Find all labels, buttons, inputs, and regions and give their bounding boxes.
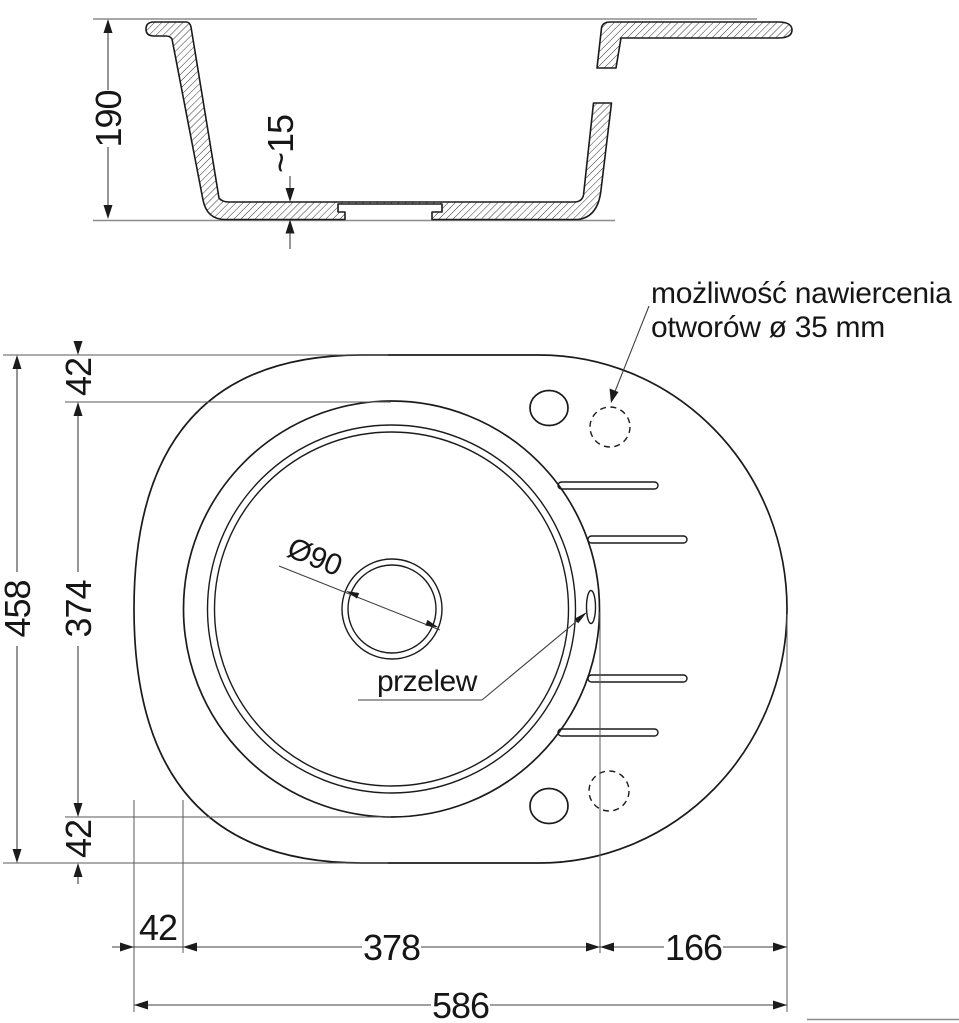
- dim-total-height-458: 458: [0, 355, 38, 863]
- dim-depth-190: 190: [88, 19, 129, 219]
- arrowhead: [773, 1001, 787, 1010]
- leader-line: [612, 306, 649, 399]
- arrowhead: [74, 803, 83, 817]
- arrowhead: [425, 620, 438, 628]
- drain-diameter-label: Ø90: [283, 532, 347, 583]
- arrowhead: [13, 849, 22, 863]
- drainer-groove-2: [588, 536, 687, 543]
- dim-label-bowl-height: 374: [58, 580, 99, 637]
- arrowhead: [74, 341, 83, 355]
- dim-line: [279, 566, 440, 630]
- bowl-rim: [184, 401, 600, 817]
- arrowhead: [134, 1001, 148, 1010]
- arrowhead: [74, 863, 83, 877]
- label-overflow: przelew: [358, 612, 587, 700]
- arrowhead: [286, 220, 295, 234]
- dim-label-depth: 190: [88, 90, 129, 147]
- dim-bowl-height-374: 42 374 42: [58, 341, 99, 884]
- bowl-inner-edge-inner: [215, 432, 569, 786]
- drain-hole-outer: [342, 559, 442, 659]
- optional-hole-top: [590, 407, 630, 447]
- arrowhead: [586, 943, 600, 952]
- drainer-groove-4: [558, 729, 658, 736]
- annotation-drill-holes: możliwość nawiercenia otworów ø 35 mm: [610, 277, 953, 403]
- dim-label-bowl-width: 378: [363, 927, 420, 968]
- dim-label-total-width: 586: [432, 985, 489, 1023]
- dims-vertical: 458 42 374 42: [0, 341, 391, 884]
- faucet-hole-bottom: [530, 789, 568, 824]
- dim-drain-diameter: Ø90: [279, 532, 440, 630]
- arrowhead: [104, 205, 113, 219]
- arrowhead: [74, 402, 83, 416]
- annotation-line2: otworów ø 35 mm: [651, 311, 885, 344]
- section-view: 190 ~15: [88, 19, 792, 249]
- annotation-line1: możliwość nawiercenia: [651, 277, 952, 310]
- top-view: [134, 355, 787, 863]
- dim-label-thickness: ~15: [260, 115, 301, 173]
- arrowhead: [773, 943, 787, 952]
- drawing-canvas: 190 ~15 moż: [0, 0, 959, 1023]
- arrowhead: [120, 943, 134, 952]
- overflow-slot: [587, 591, 596, 624]
- section-body-lower: [146, 22, 612, 220]
- arrowhead: [346, 591, 359, 599]
- section-flange-right: [597, 22, 792, 68]
- arrowhead: [610, 389, 619, 404]
- optional-hole-bottom: [589, 771, 629, 811]
- drain-hole-inner: [348, 565, 436, 653]
- arrowhead: [104, 19, 113, 33]
- arrowhead: [600, 943, 614, 952]
- leader-line: [482, 616, 583, 700]
- arrowhead: [183, 943, 197, 952]
- arrowhead: [286, 188, 295, 202]
- dim-label-top-offset: 42: [58, 358, 99, 396]
- dim-label-left-offset: 42: [139, 907, 177, 948]
- drainer-groove-3: [588, 675, 687, 682]
- faucet-hole-top: [530, 391, 568, 426]
- dim-label-bottom-offset: 42: [58, 820, 99, 858]
- sink-technical-drawing: 190 ~15 moż: [0, 0, 959, 1023]
- arrowhead: [13, 355, 22, 369]
- bowl-inner-edge-outer: [208, 425, 576, 793]
- dim-row-upper: 42 378 166: [112, 907, 787, 968]
- dim-total-width-586: 586: [134, 985, 787, 1023]
- sink-outline: [134, 355, 787, 863]
- dim-label-right-section: 166: [665, 927, 722, 968]
- dim-bottom-thickness: ~15: [260, 115, 301, 249]
- overflow-label: przelew: [377, 665, 478, 698]
- drainer-groove-1: [558, 482, 658, 489]
- dim-label-total-height: 458: [0, 580, 38, 637]
